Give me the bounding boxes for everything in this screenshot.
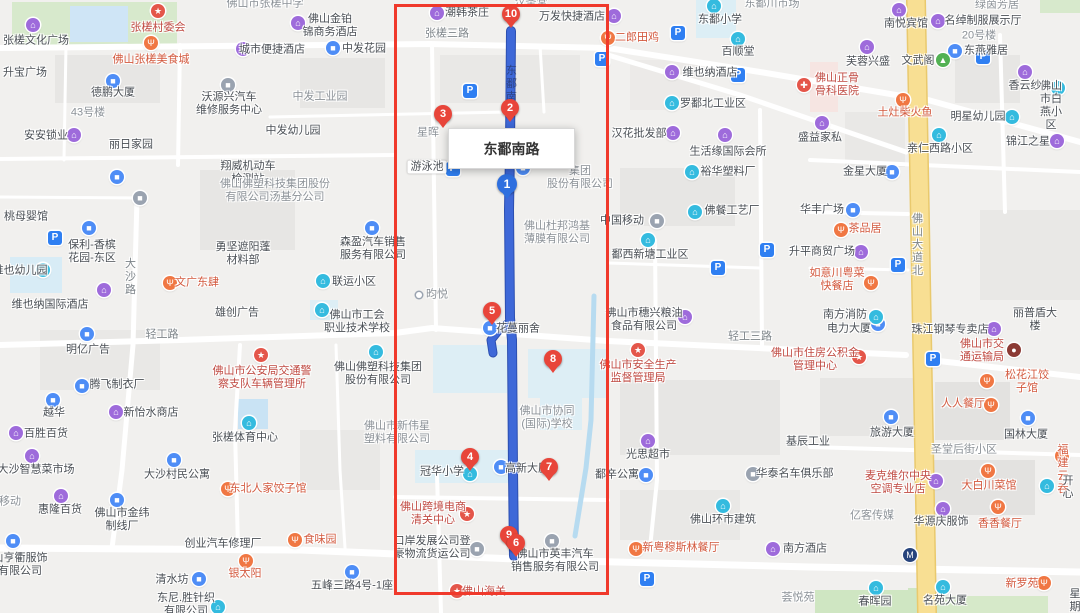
poi-icon-purple[interactable]: ⌂ — [430, 6, 444, 20]
poi-label[interactable]: 南悦宾馆 — [884, 18, 928, 31]
poi-icon-teal[interactable]: ⌂ — [688, 205, 702, 219]
poi-icon-teal[interactable]: ⌂ — [869, 310, 883, 324]
poi-label[interactable]: 升平商贸广场 — [789, 246, 855, 259]
poi-icon-purple[interactable]: ⌂ — [54, 489, 68, 503]
poi-icon-blue[interactable]: ■ — [6, 534, 20, 548]
poi-icon-purple[interactable]: ⌂ — [9, 426, 23, 440]
poi-label[interactable]: 联运小区 — [332, 276, 376, 289]
poi-icon-purple[interactable]: ⌂ — [1050, 134, 1064, 148]
poi-label: 绿茵芳居 — [975, 0, 1019, 12]
map-canvas[interactable]: ★★★★★★✚●M⌂⌂⌂⌂⌂⌂⌂⌂⌂⌂⌂⌂⌂⌂⌂⌂⌂⌂⌂⌂⌂⌂⌂⌂⌂⌂⌂■■■■… — [0, 0, 1080, 613]
poi-icon-dot[interactable] — [416, 292, 422, 298]
route-marker-2[interactable]: 2 — [501, 99, 519, 117]
poi-icon-blue[interactable]: ■ — [326, 41, 340, 55]
poi-label[interactable]: 如意川粤菜 快餐店 — [810, 267, 865, 293]
poi-icon-teal[interactable]: ⌂ — [707, 0, 721, 13]
poi-label[interactable]: 南方酒店 — [783, 543, 827, 556]
poi-icon-blue[interactable]: ■ — [885, 165, 899, 179]
poi-icon-purple[interactable]: ⌂ — [26, 18, 40, 32]
poi-icon-blue[interactable]: ■ — [82, 221, 96, 235]
poi-icon-purple[interactable]: ⌂ — [766, 542, 780, 556]
poi-label[interactable]: 锦江之星 — [1006, 136, 1050, 149]
poi-label[interactable]: 生活缘国际会所 — [690, 146, 767, 159]
poi-icon-food[interactable]: Ψ — [981, 464, 995, 478]
poi-icon-parking[interactable]: P — [463, 84, 477, 98]
poi-icon-food[interactable]: Ψ — [144, 36, 158, 50]
poi-label[interactable]: 华源庆服饰 — [914, 516, 969, 529]
poi-label[interactable]: 盛益家私 — [798, 132, 842, 145]
poi-icon-blue[interactable]: ■ — [1021, 411, 1035, 425]
poi-label[interactable]: 桃母婴馆 — [4, 211, 48, 224]
poi-icon-blue[interactable]: ■ — [884, 410, 898, 424]
poi-label[interactable]: 花蔓丽舍 — [496, 323, 540, 336]
poi-label[interactable]: 明亿广告 — [66, 344, 110, 357]
route-marker-1[interactable]: 1 — [497, 174, 517, 194]
poi-label[interactable]: 佛山金铂 锦商务酒店 — [303, 13, 358, 39]
poi-label[interactable]: 裕华塑料厂 — [701, 166, 756, 179]
poi-icon-purple[interactable]: ⌂ — [641, 434, 655, 448]
poi-label[interactable]: 佛山市英丰汽车 销售服务有限公司 — [511, 548, 599, 574]
poi-label[interactable]: 银太阳 — [229, 568, 262, 581]
poi-label[interactable]: 佛山市工会 职业技术学校 — [324, 309, 390, 335]
poi-icon-teal[interactable]: ⌂ — [869, 581, 883, 595]
poi-label[interactable]: 张槎体育中心 — [212, 432, 278, 445]
route-marker-4[interactable]: 4 — [461, 448, 479, 466]
poi-icon-food[interactable]: Ψ — [864, 276, 878, 290]
poi-label[interactable]: 麦克维尔中央 空调专业店 — [865, 470, 931, 496]
poi-icon-food[interactable]: Ψ — [239, 554, 253, 568]
poi-icon-transit[interactable]: M — [903, 548, 917, 562]
poi-icon-green[interactable]: ▲ — [936, 53, 950, 67]
poi-icon-teal[interactable]: ⌂ — [1005, 110, 1019, 124]
poi-label[interactable]: 香香餐厅 — [978, 518, 1022, 531]
poi-label[interactable]: 佛山海关 — [462, 586, 506, 599]
poi-icon-food[interactable]: Ψ — [896, 93, 910, 107]
poi-icon-food[interactable]: Ψ — [601, 31, 615, 45]
poi-icon-parking[interactable]: P — [595, 52, 609, 66]
poi-label[interactable]: 东北人家饺子馆 — [230, 483, 307, 496]
poi-icon-blue[interactable]: ■ — [639, 468, 653, 482]
poi-label[interactable]: 中发幼儿园 — [266, 125, 321, 138]
poi-label: 20号楼 — [962, 30, 996, 43]
poi-icon-parking[interactable]: P — [760, 243, 774, 257]
poi-label[interactable]: 佛山正骨 骨科医院 — [815, 72, 859, 98]
poi-icon-teal[interactable]: ⌂ — [932, 128, 946, 142]
poi-label[interactable]: 罗鄱北工业区 — [680, 98, 746, 111]
poi-icon-food[interactable]: Ψ — [991, 500, 1005, 514]
poi-icon-blue[interactable]: ■ — [948, 44, 962, 58]
poi-icon-teal[interactable]: ⌂ — [641, 233, 655, 247]
map-overlay-layer: ★★★★★★✚●M⌂⌂⌂⌂⌂⌂⌂⌂⌂⌂⌂⌂⌂⌂⌂⌂⌂⌂⌂⌂⌂⌂⌂⌂⌂⌂⌂■■■■… — [0, 0, 1080, 613]
poi-icon-purple[interactable]: ⌂ — [607, 9, 621, 23]
poi-icon-blue[interactable]: ■ — [75, 379, 89, 393]
poi-label[interactable]: 城市便捷酒店 — [239, 44, 305, 57]
poi-icon-purple[interactable]: ⌂ — [860, 40, 874, 54]
poi-label[interactable]: 芙蓉兴盛 — [846, 56, 890, 69]
poi-label[interactable]: 口岸发展公司登 豪物流货运公司 — [394, 535, 471, 561]
poi-label[interactable]: 佛山市金纬 制线厂 — [95, 507, 150, 533]
poi-icon-purple[interactable]: ⌂ — [854, 245, 868, 259]
road-name-text: 东鄱南路 — [484, 139, 540, 159]
poi-label[interactable]: 明星幼儿园 — [951, 111, 1006, 124]
poi-label[interactable]: 珠江钢琴专卖店 — [912, 324, 989, 337]
poi-label: 移动 — [0, 496, 21, 509]
poi-icon-bureau[interactable]: ● — [1007, 343, 1021, 357]
poi-icon-car[interactable]: ■ — [221, 78, 235, 92]
poi-icon-parking[interactable]: P — [711, 261, 725, 275]
poi-label[interactable]: 佛山佛塑科技集团 股份有限公司 — [334, 361, 422, 387]
poi-label[interactable]: 安安锁业 — [24, 130, 68, 143]
poi-icon-gov[interactable]: ★ — [151, 4, 165, 18]
poi-label[interactable]: 冠华小学 — [420, 466, 464, 479]
poi-label[interactable]: 百胜百货 — [24, 428, 68, 441]
poi-label[interactable]: 中发花园 — [342, 43, 386, 56]
poi-label[interactable]: 华丰广场 — [800, 204, 844, 217]
poi-icon-teal[interactable]: ⌂ — [1040, 479, 1054, 493]
poi-icon-gov[interactable]: ★ — [631, 343, 645, 357]
poi-label[interactable]: 新罗苑 — [1006, 578, 1039, 591]
poi-label[interactable]: 保利-香槟 花园-东区 — [68, 239, 116, 265]
poi-label[interactable]: 丽普盾大楼 — [1013, 307, 1058, 333]
poi-label[interactable]: 茶品居 — [849, 223, 882, 236]
poi-label[interactable]: 雄创广告 — [215, 307, 259, 320]
poi-label: 星晖 — [417, 127, 439, 140]
poi-label: 43号楼 — [71, 107, 105, 120]
poi-label: 汉圣堂 — [515, 0, 548, 10]
poi-icon-blue[interactable]: ■ — [192, 572, 206, 586]
road-label: 大沙路 — [123, 258, 136, 297]
poi-label[interactable]: 大白川菜馆 — [962, 480, 1017, 493]
road-label: 东鄱南 — [504, 65, 517, 104]
poi-label[interactable]: 新粤穆斯林餐厅 — [643, 542, 720, 555]
poi-label[interactable]: 金星大厦 — [843, 166, 887, 179]
poi-icon-food[interactable]: Ψ — [629, 542, 643, 556]
poi-icon-blue[interactable]: ■ — [846, 203, 860, 217]
poi-label: 昀悦 — [426, 289, 448, 302]
poi-label[interactable]: 游泳池 — [408, 161, 447, 174]
poi-label: 荟悦苑 — [782, 592, 815, 605]
route-marker-3[interactable]: 3 — [434, 105, 452, 123]
poi-icon-blue[interactable]: ■ — [80, 327, 94, 341]
poi-icon-food[interactable]: Ψ — [834, 223, 848, 237]
poi-label[interactable]: 大沙智慧菜市场 — [0, 464, 75, 477]
poi-label[interactable]: 沃源兴汽车 维修服务中心 — [196, 91, 262, 117]
poi-label[interactable]: 电力大厦 — [827, 323, 871, 336]
poi-label[interactable]: 土灶柴火鱼 — [878, 107, 933, 120]
poi-label: 亿客传媒 — [850, 510, 894, 523]
poi-label[interactable]: 香云纱 — [1009, 80, 1042, 93]
poi-label: 佛山佛塑科技集团股份 有限公司汤基分公司 — [220, 178, 330, 204]
poi-icon-purple[interactable]: ⌂ — [67, 128, 81, 142]
poi-icon-blue[interactable]: ■ — [167, 453, 181, 467]
poi-label[interactable]: 春晖园 — [859, 596, 892, 609]
poi-label[interactable]: 越华 — [43, 407, 65, 420]
poi-label[interactable]: 潮韩茶庄 — [445, 7, 489, 20]
poi-label[interactable]: 人人餐厅 — [941, 398, 985, 411]
poi-icon-truck[interactable]: ■ — [470, 542, 484, 556]
poi-label[interactable]: 南方消防 — [823, 309, 867, 322]
route-marker-5[interactable]: 5 — [483, 302, 501, 320]
poi-label[interactable]: 松花江饺子馆 — [1001, 369, 1054, 395]
poi-label[interactable]: 张槎文化广场 — [3, 35, 69, 48]
poi-label[interactable]: 华泰名车俱乐部 — [757, 468, 834, 481]
poi-label[interactable]: 东燕雅居 — [964, 45, 1008, 58]
poi-label[interactable]: 腾飞制衣厂 — [90, 379, 145, 392]
road-label: 轻工路 — [146, 329, 179, 342]
poi-icon-purple[interactable]: ⌂ — [931, 14, 945, 28]
poi-label[interactable]: 佛山张槎美食城 — [113, 54, 190, 67]
poi-label[interactable]: 德鹏大厦 — [91, 87, 135, 100]
poi-icon-purple[interactable]: ⌂ — [665, 65, 679, 79]
poi-label[interactable]: 佛山市交 通运输局 — [960, 338, 1004, 364]
poi-icon-blue[interactable]: ■ — [46, 393, 60, 407]
poi-icon-purple[interactable]: ⌂ — [97, 283, 111, 297]
poi-label[interactable]: 国林大厦 — [1004, 429, 1048, 442]
poi-label[interactable]: 山亨衢服饰 有限公司 — [0, 552, 48, 578]
poi-icon-teal[interactable]: ⌂ — [242, 416, 256, 430]
poi-label[interactable]: 旅游大厦 — [870, 427, 914, 440]
poi-label[interactable]: 万发快捷酒店 — [539, 11, 605, 24]
poi-label[interactable]: 维也纳国际酒店 — [12, 299, 89, 312]
poi-icon-blue[interactable]: ■ — [110, 170, 124, 184]
poi-icon-parking[interactable]: P — [926, 352, 940, 366]
poi-icon-teal[interactable]: ⌂ — [731, 32, 745, 46]
road-name-popup[interactable]: 东鄱南路 — [448, 128, 575, 169]
poi-label[interactable]: 丽日家园 — [109, 139, 153, 152]
poi-label[interactable]: 基辰工业 — [786, 436, 830, 449]
poi-label: 东鄱川市场 — [745, 0, 800, 11]
poi-label[interactable]: 百顺堂 — [722, 46, 755, 59]
poi-icon-purple[interactable]: ⌂ — [929, 474, 943, 488]
poi-icon-parking[interactable]: P — [640, 572, 654, 586]
poi-icon-parking[interactable]: P — [891, 258, 905, 272]
poi-label: 佛山市新伟星 塑料有限公司 — [364, 420, 430, 446]
poi-icon-food[interactable]: Ψ — [1037, 576, 1051, 590]
poi-label: 佛山市协同 (国际)学校 — [520, 405, 575, 431]
poi-icon-teal[interactable]: ⌂ — [316, 274, 330, 288]
poi-label[interactable]: 佛山市公安局交通警 察支队车辆管理所 — [213, 365, 312, 391]
poi-icon-teal[interactable]: ⌂ — [685, 165, 699, 179]
poi-icon-purple[interactable]: ⌂ — [25, 449, 39, 463]
road-label: 佛山大道北 — [910, 213, 923, 278]
poi-label[interactable]: 惠隆百货 — [38, 504, 82, 517]
poi-label[interactable]: 佛山市安全生产 监督管理局 — [600, 359, 677, 385]
poi-icon-parking[interactable]: P — [48, 231, 62, 245]
poi-icon-purple[interactable]: ⌂ — [987, 322, 1001, 336]
poi-icon-teal[interactable]: ⌂ — [665, 96, 679, 110]
poi-label[interactable]: 森盈汽车销售 服务有限公司 — [340, 236, 406, 262]
poi-label[interactable]: 佛山市住房公积金 管理中心 — [771, 347, 859, 373]
poi-icon-blue[interactable]: ■ — [365, 221, 379, 235]
poi-label[interactable]: 东尼.胜针织 有限公司 — [157, 592, 215, 613]
poi-icon-car[interactable]: ■ — [650, 214, 664, 228]
poi-label[interactable]: 二郎田鸡 — [615, 32, 659, 45]
poi-label[interactable]: 清水坊 — [156, 574, 189, 587]
poi-icon-gov[interactable]: ★ — [254, 348, 268, 362]
route-marker-10[interactable]: 10 — [502, 5, 520, 23]
poi-label[interactable]: 升宝广场 — [3, 67, 47, 80]
poi-label[interactable]: 中国移动 — [600, 215, 644, 228]
poi-icon-car[interactable]: ■ — [133, 191, 147, 205]
poi-label[interactable]: 佛餐工艺厂 — [705, 205, 760, 218]
poi-icon-blue[interactable]: ■ — [110, 493, 124, 507]
poi-label[interactable]: 名苑大厦 — [923, 595, 967, 608]
route-marker-7[interactable]: 7 — [540, 458, 558, 476]
route-marker-8[interactable]: 8 — [544, 350, 562, 368]
poi-icon-food[interactable]: Ψ — [288, 533, 302, 547]
road-label: 张槎三路 — [425, 28, 469, 41]
poi-label: 佛山杜邦鸿基 薄膜有限公司 — [524, 220, 590, 246]
poi-label[interactable]: 新怡水商店 — [124, 407, 179, 420]
poi-label[interactable]: 佛山市穗兴粮油 食品有限公司 — [606, 307, 683, 333]
poi-icon-purple[interactable]: ⌂ — [892, 3, 906, 17]
poi-label: 佛山市张槎中学 — [227, 0, 304, 11]
poi-label[interactable]: 东鄱小学 — [698, 14, 742, 27]
poi-label[interactable]: 佛山环市建筑 — [690, 514, 756, 527]
poi-label[interactable]: 名绰制服展示厅 — [945, 15, 1022, 28]
poi-icon-blue[interactable]: ■ — [345, 565, 359, 579]
poi-label[interactable]: 维也幼儿园 — [0, 265, 48, 278]
poi-label[interactable]: 文广东肆 — [175, 277, 219, 290]
poi-label[interactable]: 亲仁西路小区 — [907, 143, 973, 156]
poi-label[interactable]: 大沙村民公寓 — [144, 469, 210, 482]
road-label: 轻工三路 — [728, 331, 772, 344]
poi-label[interactable]: 汉花批发部 — [612, 128, 667, 141]
route-marker-6[interactable]: 6 — [507, 534, 525, 552]
poi-icon-food[interactable]: Ψ — [984, 398, 998, 412]
poi-icon-purple[interactable]: ⌂ — [109, 405, 123, 419]
poi-label[interactable]: 文武阁 — [902, 55, 935, 68]
poi-icon-food[interactable]: Ψ — [980, 374, 994, 388]
poi-label[interactable]: 勇坚遮阳蓬 材料部 — [216, 241, 271, 267]
poi-icon-hospital[interactable]: ✚ — [797, 78, 811, 92]
poi-label[interactable]: 创业汽车修理厂 — [185, 538, 262, 551]
poi-icon-purple[interactable]: ⌂ — [718, 128, 732, 142]
poi-icon-teal[interactable]: ⌂ — [369, 345, 383, 359]
poi-label[interactable]: 张槎村委会 — [131, 22, 186, 35]
poi-icon-car[interactable]: ■ — [545, 534, 559, 548]
poi-label[interactable]: 鄱西新塘工业区 — [612, 249, 689, 262]
poi-label: 圣堂后街小区 — [931, 444, 997, 457]
poi-label[interactable]: 开心 — [1062, 475, 1074, 501]
poi-label[interactable]: 五峰三路4号-1座 — [311, 580, 393, 593]
poi-label[interactable]: 鄱辛公寓 — [595, 469, 639, 482]
poi-label[interactable]: 维也纳酒店 — [683, 67, 738, 80]
poi-label[interactable]: 食味园 — [304, 534, 337, 547]
poi-label[interactable]: 佛山跨境电商 清关中心 — [400, 501, 466, 527]
poi-icon-purple[interactable]: ⌂ — [936, 502, 950, 516]
poi-icon-teal[interactable]: ⌂ — [716, 499, 730, 513]
poi-icon-purple[interactable]: ⌂ — [666, 126, 680, 140]
poi-icon-purple[interactable]: ⌂ — [1018, 65, 1032, 79]
poi-label[interactable]: 星期 — [1070, 588, 1080, 613]
poi-label[interactable]: 光思超市 — [626, 449, 670, 462]
poi-icon-parking[interactable]: P — [671, 26, 685, 40]
poi-icon-purple[interactable]: ⌂ — [815, 116, 829, 130]
poi-icon-teal[interactable]: ⌂ — [936, 580, 950, 594]
poi-label: 中发工业园 — [293, 91, 348, 104]
